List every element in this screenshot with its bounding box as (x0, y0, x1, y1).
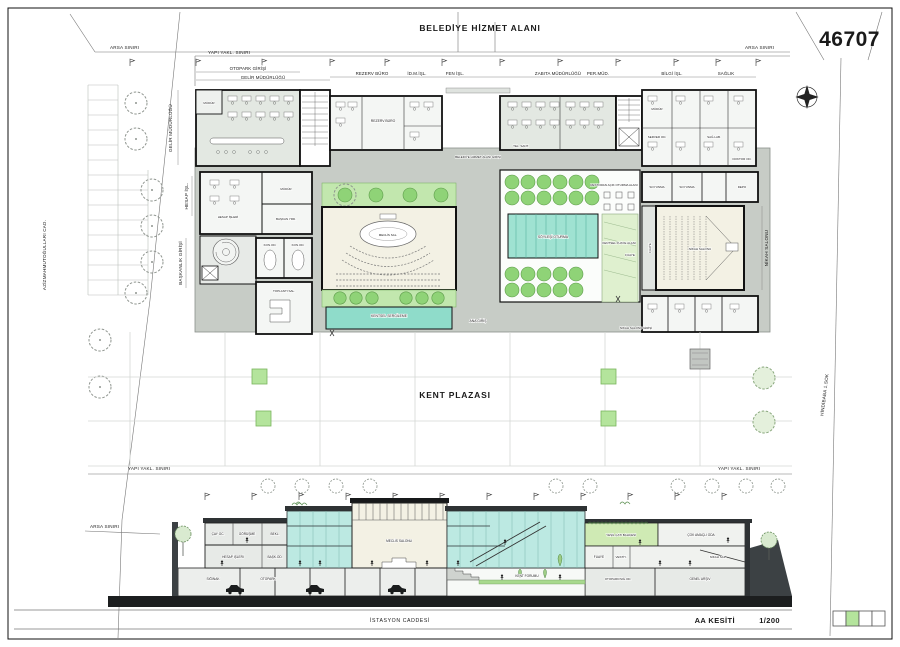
label-azizmahmut-cad: AZİZMAHMUTOĞULLARI CAD. (41, 220, 47, 290)
label-arsa-siniri-top-right: ARSA SINIRI (745, 45, 774, 50)
sec-yesil-cati: YEŞİL ÇATI BAHÇESİ (606, 532, 636, 537)
room-soylesi: SÖYLEŞİ OTURMA (538, 234, 569, 239)
label-gelir-vertical: GELİR MÜDÜRLÜĞÜ (167, 104, 173, 152)
block-rezerv: REZERV BÜRO (330, 96, 442, 150)
drawing-canvas: ARSA SINIRI ARSA SINIRI ARSA SINIRI YAPI… (0, 0, 900, 647)
sec-vestiyer: VESTİY. (615, 554, 626, 559)
label-ana-giris: ANA GİRİŞ (470, 318, 488, 323)
entry-canopy (446, 88, 510, 93)
sec-gorusme: GÖRÜŞME (239, 532, 255, 536)
sec-hesap-isleri: HESAP İŞLERİ (222, 554, 244, 559)
room-restoran: RESTORAN AÇIK OTURMA ALANI (590, 183, 637, 187)
section-meclis-hall: MECLİS SALONU (350, 498, 449, 568)
stair-core-left (300, 90, 330, 166)
room-tel-sant: TEL. SANT. (513, 144, 529, 148)
label-section-scale: 1/200 (759, 616, 780, 625)
room-rezerv-buro: REZERV BÜRO (371, 119, 396, 123)
dim-idm-isl: İD.M.İŞL. (407, 71, 426, 76)
sec-otopark-sig: OTOPARK/SIĞ.OD. (605, 576, 632, 581)
label-nikah-vertical: NİKAH SALONU (763, 230, 769, 267)
label-hizmet-girisi: BELEDİYE HİZMET ALANI GİRİŞİ (455, 154, 501, 159)
room-nikah-salonu: NİKAH SALONU (689, 246, 711, 251)
dim-zabita: ZABITA MÜDÜRLÜĞÜ (535, 71, 581, 76)
room-baskan-yrd: BAŞKAN YRD. (276, 217, 296, 221)
label-nikah-girisi: NİKAH SALONU GİRİŞİ (620, 325, 652, 330)
block-zabita: TEL. SANT. (500, 96, 616, 150)
architectural-sheet: ARSA SINIRI ARSA SINIRI ARSA SINIRI YAPI… (0, 0, 900, 647)
label-baskanlik-girisi: BAŞKANLIK GİRİŞİ (177, 241, 183, 285)
sheet-number: 46707 (819, 28, 880, 51)
label-yapi-yakl-top: YAPI YAKL. SINIRI (208, 50, 250, 55)
kent-forumu: KENT FORUMU (447, 568, 585, 596)
room-depo: DEPO (738, 185, 747, 189)
room-sag-lab: SAĞ.LAB. (707, 134, 721, 139)
sec-bekl: BEKL. (270, 532, 279, 536)
kentsel-sergileme-strip (326, 307, 452, 329)
label-kent-plazasi: KENT PLAZASI (419, 390, 490, 400)
dim-per-mud: PER.MÜD. (587, 71, 609, 76)
street-ground-bar (108, 596, 792, 607)
legend (833, 611, 885, 626)
label-yapi-yakl-bottom-right: YAPI YAKL. SINIRI (718, 466, 760, 471)
sec-genel-arsiv: GENEL ARŞİV (690, 576, 712, 581)
label-arsa-siniri-top-left: ARSA SINIRI (110, 45, 139, 50)
stair-core-right (616, 96, 642, 150)
dim-otopark-girisi: OTOPARK GİRİŞİ (230, 66, 267, 71)
room-mudur-gelir: MÜDÜR (203, 101, 215, 105)
dim-bilgi-isl: BİLGİ İŞL. (661, 71, 682, 76)
dim-rezerv-buro: REZERV BÜRO (356, 71, 389, 76)
basement-rooms (585, 568, 745, 596)
sec-otopark: OTOPARK (260, 577, 276, 581)
room-doktor: DOKTOR OD. (733, 157, 752, 161)
label-hesap-vertical: HESAP İŞL. (183, 183, 189, 210)
label-fuaye-vertical: FUAYE (648, 243, 652, 253)
room-hesap-isleri: HESAP İŞLERİ (218, 214, 239, 219)
room-kentsel-fuaye: KENTSEL FUAYE ALANI (602, 241, 636, 245)
room-kon-od-1: KON.OD. (264, 243, 277, 247)
room-mudur-hesap: MÜDÜR (280, 187, 292, 191)
planter-1 (252, 369, 267, 384)
sec-cok-amacli: ÇOK AMAÇLI ODA (687, 533, 715, 537)
room-mudur-right: MÜDÜR (651, 107, 663, 111)
sec-cay-oc: ÇAY OC. (212, 532, 225, 536)
monument (690, 349, 710, 369)
legend-active-cell (846, 611, 859, 626)
room-toplanti: TOPLANTI SAL. (273, 289, 295, 293)
planter-4 (601, 411, 616, 426)
label-aa-kesiti: AA KESİTİ (695, 616, 735, 625)
dim-fen-isl: FEN İŞL. (446, 71, 465, 76)
sec-kent-forumu: KENT FORUMU (515, 574, 539, 578)
planter-2 (601, 369, 616, 384)
sec-meclis-salonu: MECLİS SALONU (386, 538, 413, 543)
room-server: SERVER OD. (648, 135, 667, 139)
block-bilgi-saglik: MÜDÜR SERVER OD. SAĞ.LAB. DOKTOR OD. (642, 90, 756, 166)
sec-siginak: SIĞINAK (207, 576, 221, 581)
room-kentsel-sergileme: KENTSEL SERGİLEME (371, 313, 408, 318)
label-yapi-yakl-bottom-left: YAPI YAKL. SINIRI (128, 466, 170, 471)
label-belediye-hizmet-alani: BELEDİYE HİZMET ALANI (419, 23, 540, 33)
label-arsa-siniri-left: ARSA SINIRI (90, 524, 119, 529)
restaurant-area: RESTORAN AÇIK OTURMA ALANI SÖYLEŞİ OTURM… (500, 170, 640, 302)
dim-saglik: SAĞLIK (718, 71, 734, 76)
room-meclis: MECLİS SAL. (379, 232, 398, 237)
room-fuaye-restoran: FUAYE (625, 253, 635, 257)
section-glass-left (285, 503, 354, 568)
room-soyunma-1: SOYUNMA (649, 185, 664, 189)
planter-3 (256, 411, 271, 426)
dim-gelir-mudurlugu: GELİR MÜDÜRLÜĞÜ (241, 75, 285, 80)
sec-fuaye: FUAYE (594, 555, 604, 559)
sec-nikah-sal: NİKAH SAL. (710, 554, 727, 559)
sec-bask-od: BAŞK.OD. (267, 555, 282, 559)
room-kon-od-2: KON.OD. (292, 243, 305, 247)
council-hall: MECLİS SAL. KENTSEL SERGİLEME (322, 183, 456, 329)
label-istasyon-caddesi: İSTASYON CADDESİ (370, 617, 430, 624)
room-soyunma-2: SOYUNMA (679, 185, 694, 189)
